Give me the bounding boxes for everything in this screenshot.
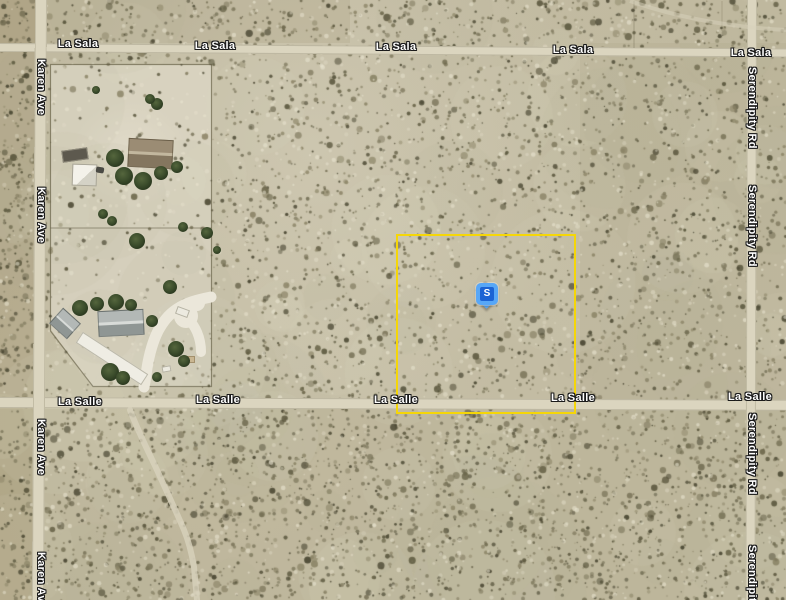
- road-serendipity-rd: [745, 0, 757, 600]
- marker-badge: S: [480, 287, 494, 301]
- property-marker[interactable]: S: [476, 283, 498, 313]
- parcel-boundary-highlight: [396, 234, 576, 414]
- marker-letter: S: [484, 289, 491, 299]
- terrain-texture: [0, 0, 786, 600]
- satellite-map[interactable]: La Sala La Sala La Sala La Sala La Sala …: [0, 0, 786, 600]
